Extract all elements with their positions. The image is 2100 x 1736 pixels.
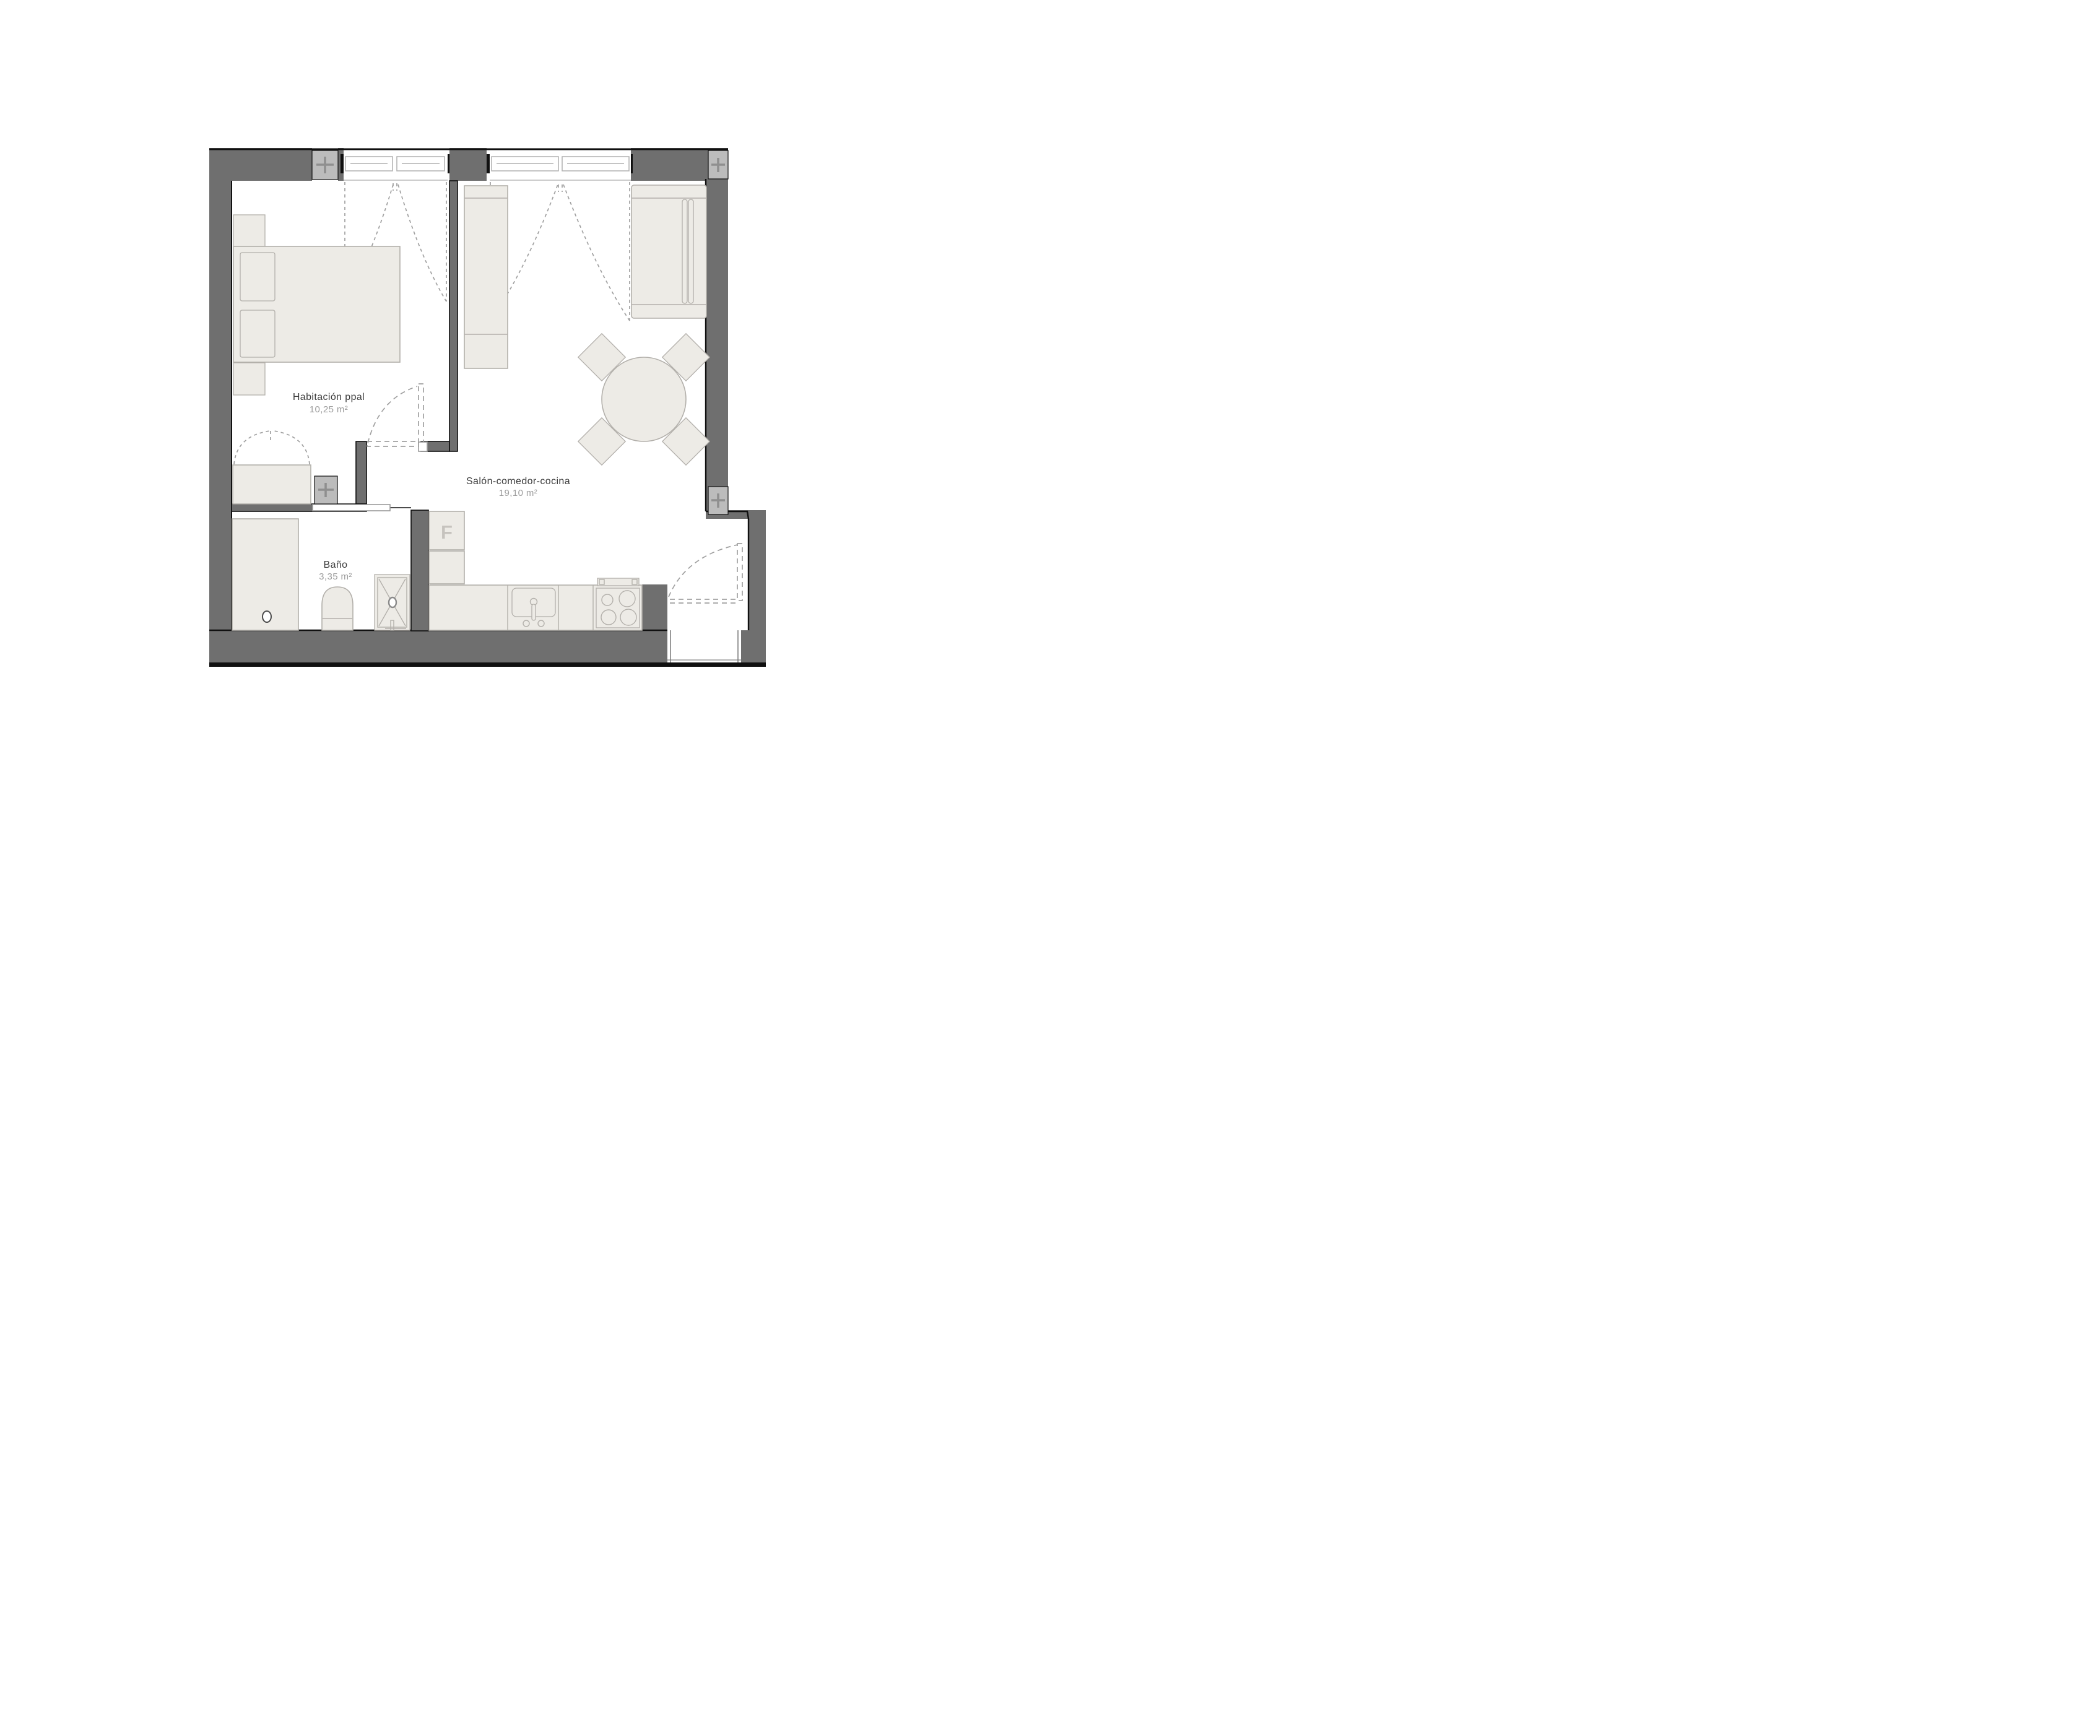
floor-plan: F <box>0 0 1050 868</box>
wall-bottom-outer-band <box>209 662 766 667</box>
wall-kitchen-pier <box>642 584 667 662</box>
bedroom-furniture <box>233 215 400 504</box>
faucet-lever <box>532 604 536 620</box>
cooktop <box>596 578 640 628</box>
bathroom-sliding-door <box>313 505 411 511</box>
window-swing-apex <box>393 183 397 191</box>
room-name-bedroom: Habitación ppal <box>293 392 365 402</box>
door-leaf-open <box>419 384 423 443</box>
wall-top-left <box>209 148 312 181</box>
kitchen: F <box>429 511 642 630</box>
toilet <box>322 587 353 630</box>
room-area-bathroom: 3,35 m² <box>319 571 352 582</box>
sofa-backrest-cushion <box>688 199 693 303</box>
wall-bathroom-kitchen <box>411 510 428 631</box>
wall-top-pier <box>449 148 487 181</box>
wall-right-lower <box>741 519 766 662</box>
wall-bedroom-partition <box>449 181 458 451</box>
door-leaf-closed <box>367 441 419 446</box>
door-swing-arc <box>669 545 737 597</box>
room-area-living: 19,10 m² <box>499 488 537 498</box>
living-furniture <box>464 185 709 465</box>
wall-right-upper <box>706 179 728 514</box>
round-table <box>602 357 686 441</box>
bedroom-door <box>367 384 427 451</box>
closet <box>233 465 311 504</box>
shower-drain-icon <box>389 597 396 607</box>
window-swing-apex <box>558 184 562 192</box>
closet-swing-arc <box>274 431 310 464</box>
door-leaf-open <box>737 544 742 601</box>
wall-left <box>209 148 232 662</box>
room-area-bedroom: 10,25 m² <box>310 404 348 415</box>
door-hinge-plate <box>419 442 427 451</box>
window-swing-arc <box>563 184 630 321</box>
living-window <box>490 150 631 321</box>
sofa-backrest-cushion <box>682 199 687 303</box>
washer-drain-icon <box>262 611 271 622</box>
pillow <box>240 253 275 301</box>
kitchen-tall-unit <box>429 551 464 584</box>
sofa <box>631 185 706 318</box>
entry-threshold <box>667 630 741 662</box>
closet-doors <box>234 431 310 464</box>
wall-step-inner-line <box>706 511 748 630</box>
nightstand <box>233 363 265 395</box>
toilet-bowl <box>322 587 353 630</box>
entry-door <box>667 544 742 662</box>
shower <box>375 575 410 630</box>
pillow <box>240 310 275 357</box>
fridge-label: F <box>441 521 453 543</box>
dining-set <box>578 334 709 465</box>
room-name-living: Salón-comedor-cocina <box>466 476 570 487</box>
tall-cabinet <box>464 186 508 368</box>
nightstand <box>233 215 265 246</box>
closet-swing-arc <box>234 431 270 464</box>
wall-bottom <box>209 630 667 662</box>
sliding-door-leaf <box>313 505 390 511</box>
window-swing-arc <box>398 184 446 302</box>
jamb-mark <box>487 154 490 173</box>
room-name-bathroom: Baño <box>324 560 348 570</box>
door-swing-arc <box>368 386 417 443</box>
wall-hall <box>356 441 367 504</box>
jamb-mark <box>341 154 344 173</box>
